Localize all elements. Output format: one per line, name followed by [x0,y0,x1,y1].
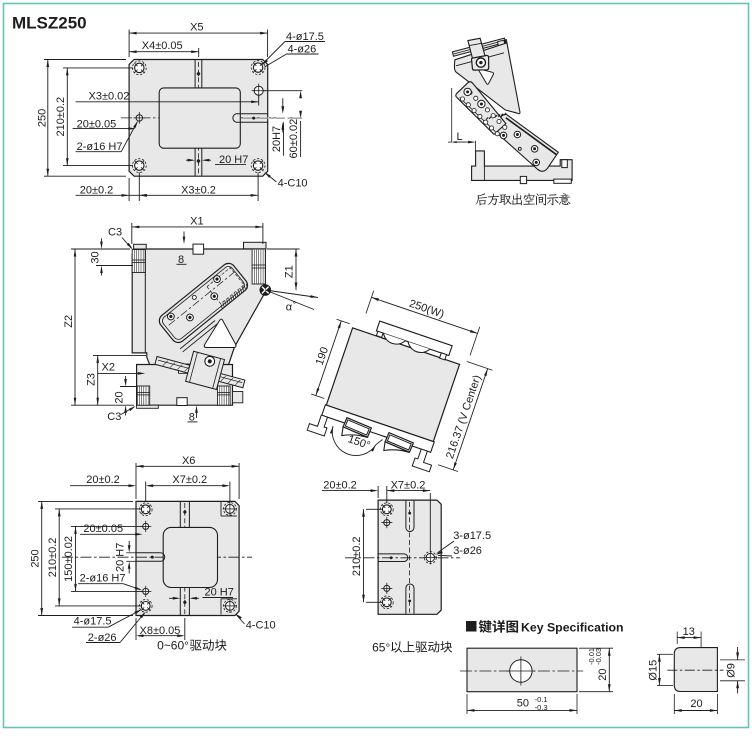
svg-text:Ø9: Ø9 [725,663,737,678]
svg-text:20: 20 [597,668,609,680]
svg-text:210±0.2: 210±0.2 [47,538,59,578]
svg-text:C3: C3 [107,411,121,423]
svg-text:210±0.2: 210±0.2 [55,97,67,137]
svg-text:20±0.2: 20±0.2 [80,184,114,196]
svg-text:Z1: Z1 [284,265,296,278]
svg-text:13: 13 [683,626,695,638]
svg-text:X8±0.05: X8±0.05 [140,625,181,637]
svg-text:°: ° [293,300,297,310]
svg-text:250: 250 [37,109,49,127]
svg-text:MLSZ250: MLSZ250 [12,14,87,33]
svg-text:Z2: Z2 [63,315,75,328]
svg-text:X5: X5 [190,21,203,33]
svg-text:-0.3: -0.3 [535,703,548,712]
svg-text:X7±0.2: X7±0.2 [172,474,207,486]
svg-text:0~60°: 0~60° [157,639,189,653]
svg-text:Key Specification: Key Specification [521,620,624,634]
svg-text:150±0.02: 150±0.02 [63,536,75,582]
svg-text:X1: X1 [190,215,203,227]
svg-text:X3±0.2: X3±0.2 [181,185,216,197]
svg-text:3-ø26: 3-ø26 [453,545,482,557]
svg-text:65°: 65° [372,641,390,655]
svg-text:-0.03: -0.03 [594,648,603,665]
svg-text:3-ø17.5: 3-ø17.5 [453,530,491,542]
svg-text:20 H7: 20 H7 [205,587,234,599]
svg-text:Ø15: Ø15 [647,660,659,681]
svg-text:20±0.2: 20±0.2 [86,474,120,486]
svg-text:30: 30 [89,251,101,263]
svg-text:20 H7: 20 H7 [115,543,127,572]
svg-text:X2: X2 [102,361,115,373]
svg-text:X7±0.2: X7±0.2 [391,479,426,491]
svg-text:50: 50 [517,697,529,709]
svg-text:20±0.2: 20±0.2 [323,479,357,491]
svg-text:20: 20 [113,391,125,403]
svg-text:C3: C3 [108,227,122,239]
svg-text:20±0.05: 20±0.05 [83,523,123,535]
svg-text:4-ø17.5: 4-ø17.5 [74,616,112,628]
svg-text:20: 20 [690,698,702,710]
svg-text:4-C10: 4-C10 [246,619,276,631]
svg-text:X6: X6 [182,455,195,467]
svg-text:X3±0.02: X3±0.02 [89,91,130,103]
svg-text:210±0.2: 210±0.2 [351,536,363,576]
svg-text:20H7: 20H7 [271,126,283,152]
svg-text:X4±0.05: X4±0.05 [142,40,183,52]
svg-text:2-ø16 H7: 2-ø16 H7 [80,572,126,584]
svg-text:250: 250 [29,549,41,567]
svg-text:4-C10: 4-C10 [278,177,308,189]
svg-text:Z3: Z3 [85,373,97,386]
svg-text:L: L [457,131,463,143]
svg-text:60±0.02: 60±0.02 [288,119,300,159]
